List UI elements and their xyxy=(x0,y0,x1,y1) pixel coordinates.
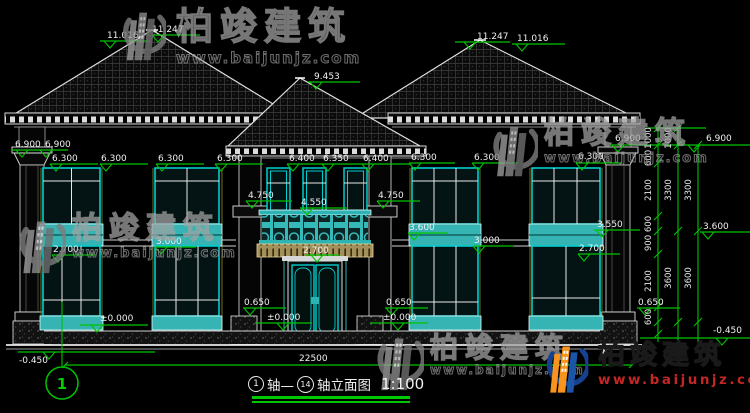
dim-label: 6.300 xyxy=(474,153,500,163)
dim-label: 2100 xyxy=(644,270,654,292)
dim-label: 6.350 xyxy=(323,154,349,164)
dim-label: 6.300 xyxy=(578,152,604,162)
dim-label: 6.900 xyxy=(45,140,71,150)
plinth-band xyxy=(44,331,600,344)
door-handle xyxy=(311,297,319,304)
dim-label: 2.700 xyxy=(303,246,329,256)
dim-label: 3.000 xyxy=(156,237,182,247)
dim-label: 6.400 xyxy=(289,154,315,164)
title-underline-thin xyxy=(252,401,410,403)
ground-line xyxy=(6,345,642,349)
dim-label: 6.300 xyxy=(217,154,243,164)
drawing-title: 1 轴— 14 轴立面图 1:100 xyxy=(248,372,458,396)
dim-label: 11.247 xyxy=(152,25,184,35)
dim-label: ±0.000 xyxy=(100,314,134,324)
drawing-scale: 1:100 xyxy=(381,375,424,393)
dim-label: 11.016 xyxy=(107,31,139,41)
dim-label: 4.750 xyxy=(248,191,274,201)
dim-label: -0.450 xyxy=(713,326,742,336)
dim-label: 3.600 xyxy=(703,222,729,232)
entrance-double-door xyxy=(272,256,358,343)
dim-label: 6.300 xyxy=(52,154,78,164)
dim-label: 0.650 xyxy=(244,298,270,308)
title-suffix-text: 轴立面图 xyxy=(317,374,371,394)
elevation-drawing: 11.01611.24711.24711.0169.4536.9006.9006… xyxy=(0,0,750,413)
dim-label: 3300 xyxy=(684,179,694,201)
dim-label: 3.600 xyxy=(409,223,435,233)
dim-label: -0.450 xyxy=(19,356,48,366)
dim-label: 600 xyxy=(644,309,654,325)
dim-label: 4.550 xyxy=(301,198,327,208)
balcony-balustrade xyxy=(259,210,371,244)
dim-label: 9.453 xyxy=(314,72,340,82)
dim-label: 6.300 xyxy=(158,154,184,164)
window-stack-3 xyxy=(409,168,481,330)
dim-label: 6.300 xyxy=(101,154,127,164)
dim-label: 2.700 xyxy=(53,245,79,255)
dim-label: 600 xyxy=(644,216,654,232)
dim-label: 6.900 xyxy=(15,140,41,150)
dim-label: 3600 xyxy=(684,267,694,289)
cad-elevation-screenshot: 11.01611.24711.24711.0169.4536.9006.9006… xyxy=(0,0,750,413)
title-mid-text: 轴— xyxy=(267,374,294,394)
window-stack-2 xyxy=(152,168,222,330)
dim-label: 900 xyxy=(644,235,654,251)
overall-dimension-22500 xyxy=(62,362,635,368)
right-hip-roof xyxy=(355,40,636,118)
dim-label: 3300 xyxy=(664,179,674,201)
dim-label: 3.000 xyxy=(474,236,500,246)
dim-label: 11.016 xyxy=(517,34,549,44)
dim-label: 600 xyxy=(644,150,654,166)
axis-bubble-end: 14 xyxy=(297,376,314,393)
dim-label: 1000 xyxy=(644,127,654,149)
dim-label: 0.650 xyxy=(386,298,412,308)
dim-label: 4.750 xyxy=(378,191,404,201)
dim-label: 6.400 xyxy=(363,154,389,164)
dim-label: 6.300 xyxy=(411,153,437,163)
dim-label: 6.900 xyxy=(615,134,641,144)
dim-label: ±0.000 xyxy=(383,313,417,323)
dim-label: 22500 xyxy=(299,354,328,364)
dim-label: 3600 xyxy=(664,267,674,289)
axis-bubble-start: 1 xyxy=(248,376,264,392)
dim-label: 2100 xyxy=(644,179,654,201)
dim-label: 6.900 xyxy=(706,134,732,144)
dim-label: ±0.000 xyxy=(267,313,301,323)
axis-number: 1 xyxy=(57,375,67,393)
left-hip-roof xyxy=(8,30,296,118)
dim-label: 1000 xyxy=(664,127,674,149)
dimension-chains xyxy=(654,124,702,342)
dim-label: 0.650 xyxy=(638,298,664,308)
title-underline-thick xyxy=(252,396,410,399)
dim-label: 11.247 xyxy=(477,32,509,42)
dim-label: 2.700 xyxy=(579,244,605,254)
right-eave-fascia xyxy=(388,113,640,127)
dim-label: 3.550 xyxy=(597,220,623,230)
